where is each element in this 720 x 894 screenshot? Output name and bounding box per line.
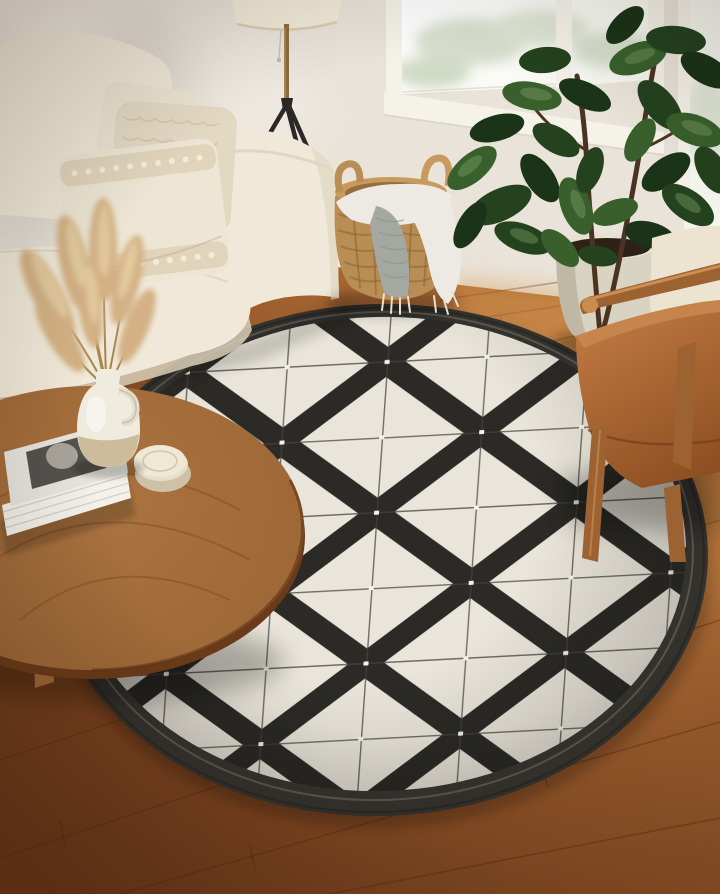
living-room-photo bbox=[0, 0, 720, 894]
photo-vignette bbox=[0, 0, 720, 894]
scene-canvas bbox=[0, 0, 720, 894]
